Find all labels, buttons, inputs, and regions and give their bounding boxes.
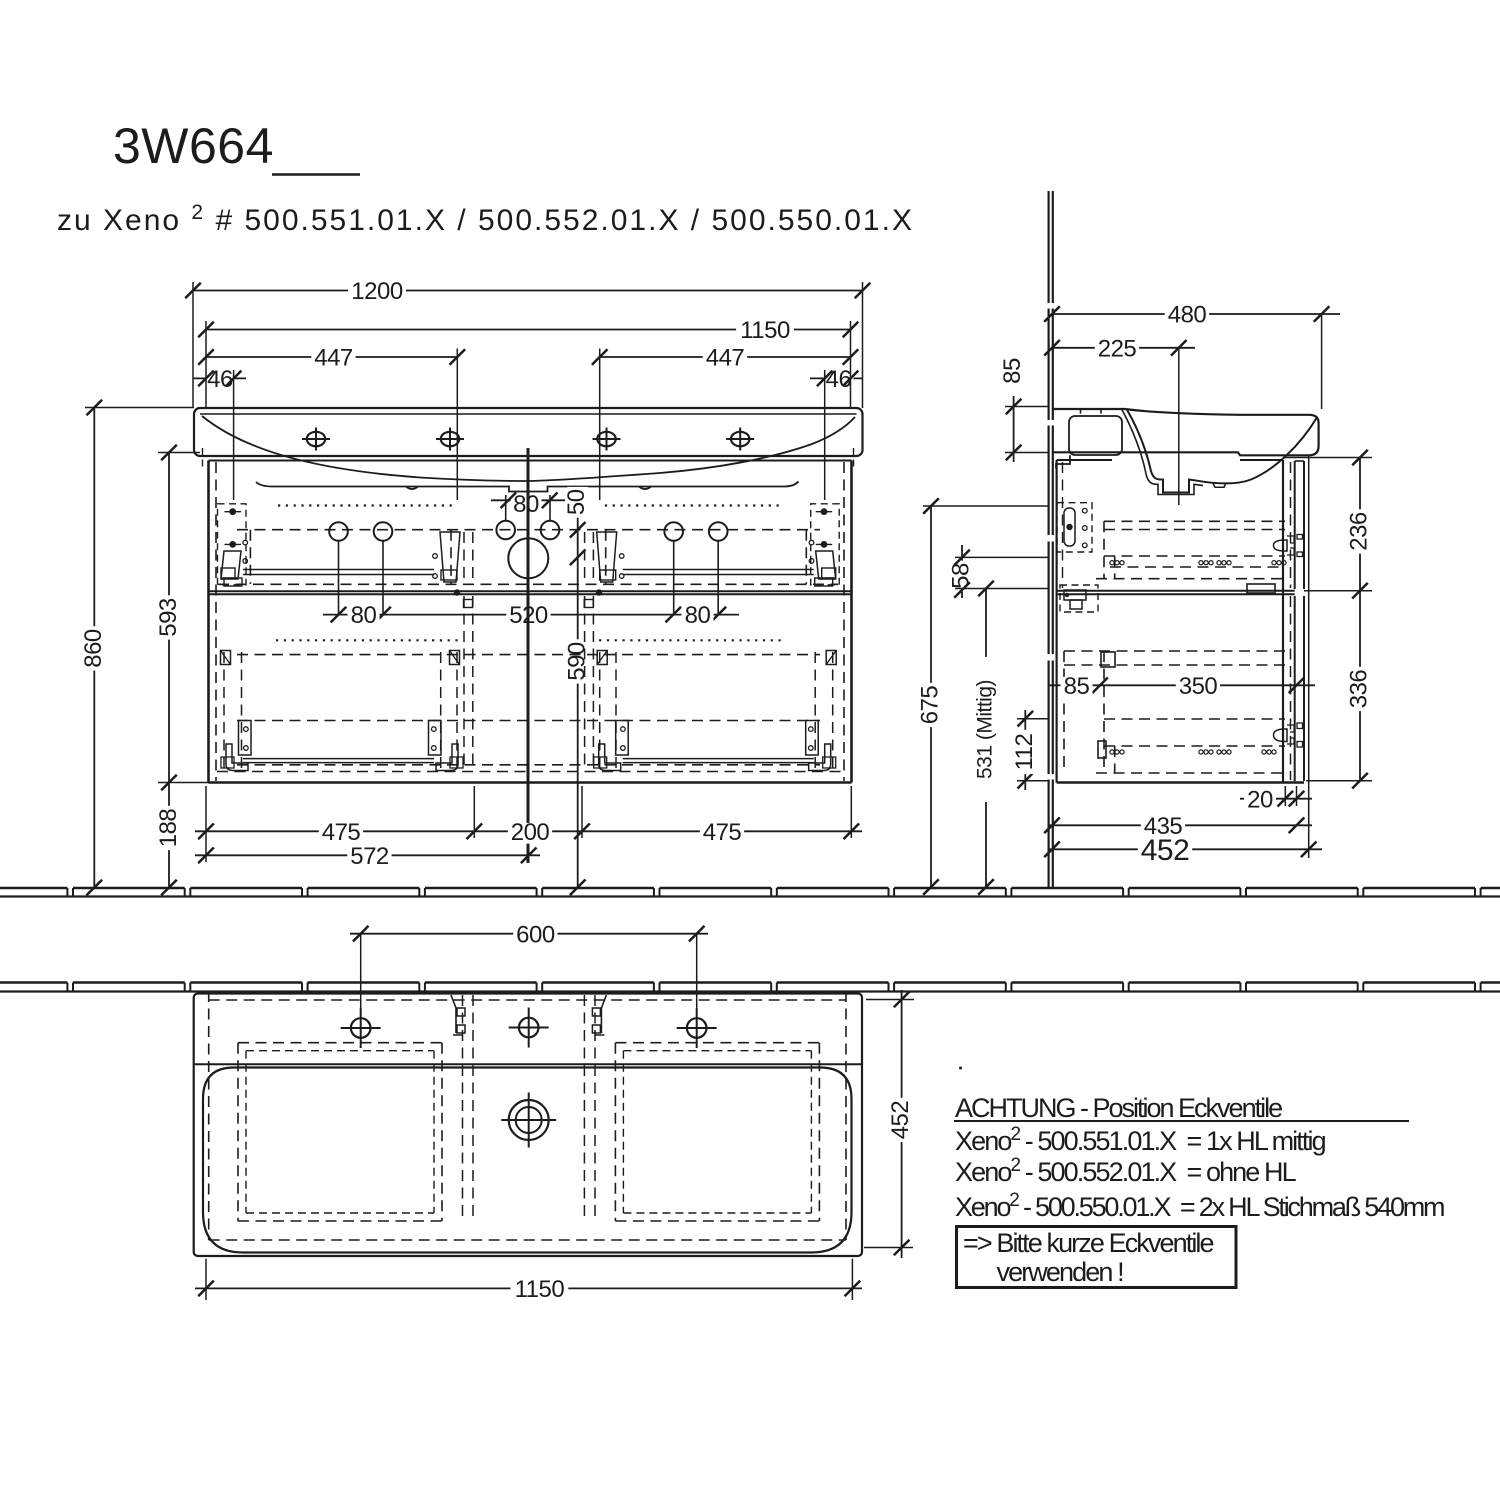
svg-text:593: 593 — [155, 598, 182, 637]
svg-text:531 (Mittig): 531 (Mittig) — [974, 680, 997, 779]
svg-text:ACHTUNG - Position Eckventile: ACHTUNG - Position Eckventile — [955, 1093, 1282, 1123]
svg-text:Xeno2 - 500.550.01.X = 2x HL: Xeno2 - 500.550.01.X = 2x HL Stichmaß 54… — [955, 1190, 1444, 1222]
svg-text:600: 600 — [516, 921, 555, 948]
svg-text:452: 452 — [1141, 834, 1190, 867]
svg-text:675: 675 — [917, 686, 944, 725]
svg-text:475: 475 — [322, 819, 361, 846]
svg-text:85: 85 — [999, 358, 1026, 384]
svg-text:46: 46 — [207, 366, 233, 393]
svg-text:20: 20 — [1247, 786, 1273, 813]
svg-text:572: 572 — [350, 843, 389, 870]
svg-text:350: 350 — [1179, 673, 1218, 700]
svg-text:452: 452 — [887, 1101, 914, 1140]
svg-text:188: 188 — [155, 809, 182, 848]
svg-text:3W664: 3W664 — [113, 118, 274, 174]
svg-text:1150: 1150 — [515, 1276, 565, 1303]
svg-text:480: 480 — [1168, 302, 1207, 329]
svg-text:verwenden !: verwenden ! — [997, 1257, 1124, 1287]
svg-text:200: 200 — [511, 819, 550, 846]
svg-text:80: 80 — [513, 491, 539, 518]
svg-text:1150: 1150 — [740, 317, 790, 344]
svg-text:=> Bitte kurze Eckventile: => Bitte kurze Eckventile — [963, 1228, 1214, 1258]
svg-text:112: 112 — [1011, 733, 1038, 770]
svg-text:80: 80 — [351, 602, 377, 629]
svg-text:85: 85 — [1064, 673, 1090, 700]
svg-text:336: 336 — [1346, 670, 1373, 709]
svg-text:46: 46 — [826, 366, 852, 393]
svg-text:58: 58 — [948, 563, 975, 589]
svg-text:447: 447 — [706, 345, 745, 372]
svg-text:860: 860 — [80, 629, 107, 668]
svg-text:475: 475 — [703, 819, 742, 846]
svg-text:447: 447 — [314, 345, 353, 372]
svg-text:236: 236 — [1346, 512, 1373, 551]
svg-text:80: 80 — [685, 602, 711, 629]
svg-text:1200: 1200 — [351, 278, 403, 305]
svg-text:zu Xeno 2 # 500.551.01.X / 500: zu Xeno 2 # 500.551.01.X / 500.552.01.X … — [57, 201, 914, 237]
svg-text:590: 590 — [564, 642, 591, 681]
svg-text:50: 50 — [563, 489, 590, 515]
svg-text:225: 225 — [1098, 335, 1137, 362]
svg-text:Xeno2 - 500.552.01.X = ohne H: Xeno2 - 500.552.01.X = ohne HL — [955, 1155, 1297, 1187]
